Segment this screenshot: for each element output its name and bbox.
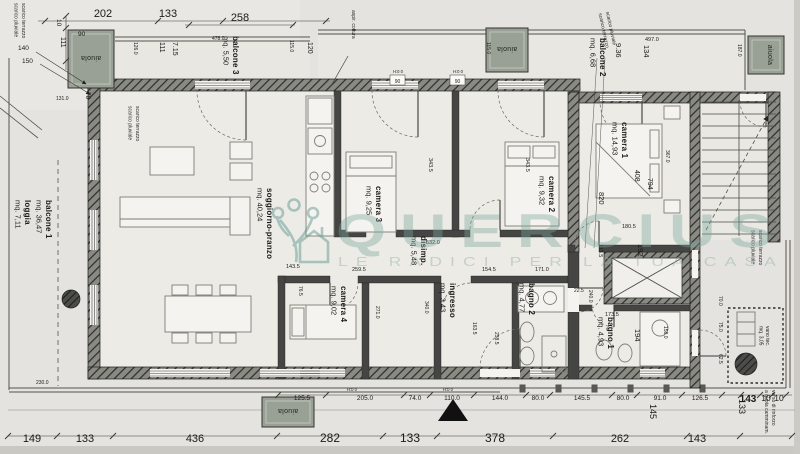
dim: 133 [76, 433, 94, 445]
dim: 238.5 [493, 332, 499, 345]
window-marker: H:0 0 [453, 69, 464, 74]
room-label-balcone1: balcone 1mq. 36,47 [35, 200, 54, 239]
dim: 187.0 [736, 44, 742, 57]
dim: 80.0 [532, 395, 545, 402]
dim: 115.0 [485, 42, 491, 54]
watermark-tagline: LE RADICI PER LA TUA CASA [338, 254, 784, 269]
floor-plan-svg: aiuola aiuola aiuola aiuola soggiorno-pr… [0, 0, 800, 454]
dim: 91.0 [654, 395, 667, 402]
dim: 133 [159, 8, 177, 20]
dim: 194 [633, 329, 642, 342]
dim: 150 [22, 58, 33, 65]
dim: 820 [597, 192, 606, 205]
dim: 62.5 [717, 354, 723, 364]
dim: 120 [306, 42, 313, 54]
dim: 22.5 [574, 288, 584, 294]
dim: 173.5 [605, 312, 619, 318]
dim: 149 [23, 433, 41, 445]
dim: 144.0 [492, 395, 509, 402]
dim: 205.0 [357, 395, 374, 402]
watermark-brand: QUERCIUS [336, 204, 786, 257]
dim: 343.5 [524, 158, 530, 172]
dim: 145 [648, 404, 658, 419]
drain-note: scarico terrazzoscarico pluviale [127, 106, 141, 142]
dim: 230.0 [36, 380, 49, 386]
dim: 70.0 [717, 296, 723, 306]
dim: 258 [231, 12, 249, 24]
window-marker: 90 [395, 79, 401, 85]
dim: 262 [611, 433, 629, 445]
dim: 282 [320, 431, 340, 445]
dim: 111 [158, 42, 165, 53]
dim: 90 [78, 31, 86, 38]
aiuola-label: aiuola [497, 45, 517, 52]
window-marker: 90 [455, 79, 461, 85]
dim: 408 [633, 170, 640, 182]
dim: 140 [18, 45, 29, 52]
room-label-vano-tec: vano tec.mq. 3,05 [758, 326, 771, 346]
dim: 794 [646, 178, 653, 190]
watermark: QUERCIUS LE RADICI PER LA TUA CASA [273, 200, 786, 270]
window-marker: H:0 0 [393, 69, 404, 74]
dim: 143.5 [286, 264, 300, 270]
room-label-bagno2: bagno 2mq. 4,77 [518, 283, 537, 315]
dim: 378 [485, 431, 505, 445]
dim: 367.0 [664, 150, 670, 163]
dim: 70 [84, 92, 91, 100]
floor-plan-page: aiuola aiuola aiuola aiuola soggiorno-pr… [0, 0, 800, 454]
dim: 478.0 [212, 36, 225, 42]
window-marker: H:0 0 [347, 387, 358, 392]
column [62, 290, 80, 308]
dim: 436 [186, 433, 204, 445]
dim: 145.5 [574, 395, 591, 402]
dim: 133 [400, 431, 420, 445]
dim: 126.5 [692, 395, 709, 402]
room-label-loggia: loggiamq. 7,11 [14, 200, 33, 229]
dim: 143 [740, 394, 757, 405]
dim: 343.5 [427, 158, 433, 172]
dim: 115.0 [288, 40, 294, 52]
dim: 76.5 [297, 286, 303, 296]
dim: 163.5 [471, 322, 477, 335]
dim: 125.5 [294, 395, 311, 402]
dim: 131.0 [56, 96, 69, 102]
dim: 75.0 [717, 322, 723, 332]
hood-note: aspir. cottura [350, 10, 356, 39]
room-label-camera1: camera 1mq. 14,93 [611, 122, 630, 159]
aiuola-label: aiuola [766, 45, 773, 65]
dim: 74.0 [409, 395, 422, 402]
drain-note: scarico terrazzoscarico pluviale [13, 3, 27, 39]
dim: 80.0 [617, 395, 630, 402]
dim: 9.36 [614, 43, 623, 58]
dim: 497.0 [645, 37, 659, 43]
room-label-bagno1: bagno 1mq. 4,93 [597, 317, 616, 349]
dim: 134 [642, 45, 651, 58]
dim: 111 [59, 37, 66, 48]
column [735, 353, 757, 375]
dim: 271.0 [374, 306, 380, 319]
window-marker: H:0 0 [443, 387, 454, 392]
dim: 7.15 [171, 42, 178, 56]
dim: 126.0 [132, 42, 138, 55]
dim: 202 [94, 8, 112, 20]
dim: 158.0 [662, 326, 668, 339]
aiuola-label: aiuola [278, 407, 298, 414]
dim: 240.0 [587, 290, 593, 303]
aiuola-label: aiuola [81, 54, 101, 61]
dim: 340.0 [423, 301, 429, 314]
dim: 110.0 [444, 395, 460, 402]
dim: 143 [688, 433, 706, 445]
dim: 10 [55, 19, 62, 27]
